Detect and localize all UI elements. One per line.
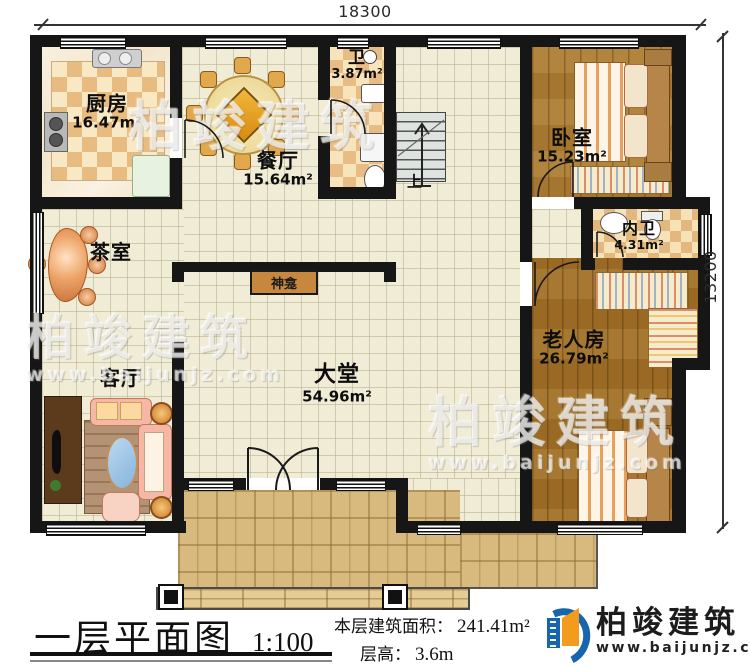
- dimension-line-top: [34, 24, 706, 26]
- window-elder-bottom: [557, 523, 643, 535]
- dining-label: 餐厅 15.64m²: [243, 149, 313, 188]
- window-hall-top: [427, 36, 501, 49]
- wall-ensuite-bottom-a: [581, 258, 595, 270]
- floor-height-label: 层高：: [360, 645, 411, 664]
- stove-burner-2: [49, 133, 63, 147]
- floor-height-value: 3.6m: [415, 644, 454, 665]
- kitchen-sink-basin-1: [98, 52, 111, 65]
- coffee-table: [106, 436, 138, 490]
- window-tea-left: [31, 212, 44, 314]
- company-logo-text: 柏竣建筑 www.baijunjz.com: [596, 607, 750, 656]
- porch-column-right: [382, 584, 408, 610]
- dining-chair-1: [282, 105, 299, 122]
- elder-headboard: [646, 428, 670, 526]
- wall-shrine-cap-left: [172, 262, 184, 282]
- hall-label: 大堂 54.96m²: [302, 363, 372, 404]
- wall-bedroom-right: [672, 35, 686, 209]
- title-underline-thick: [30, 652, 332, 656]
- floor-area-label: 本层建筑面积：: [334, 617, 453, 636]
- wall-hall-elder-upper: [520, 47, 532, 262]
- sofa-cushion-1: [96, 402, 118, 420]
- floorplan-canvas: 神龛 厨房 16.47m² 餐厅 15.64m² 卫 3.87m² 卧室 15.…: [0, 0, 750, 670]
- wall-kitchen-right-b: [170, 158, 182, 197]
- kitchen-label: 厨房 16.47m²: [72, 92, 142, 131]
- floor-height-row: 层高： 3.6m: [360, 640, 454, 666]
- dining-chair-7: [234, 57, 251, 74]
- ensuite-label: 内卫 4.31m²: [614, 220, 663, 252]
- company-website: www.baijunjz.com: [596, 640, 750, 656]
- porch-step: [156, 587, 470, 610]
- bath-label: 卫 3.87m²: [331, 49, 382, 83]
- kitchen-fridge: [132, 155, 170, 197]
- elder-bed-blanket: [578, 430, 628, 524]
- kitchen-sink-basin-2: [119, 52, 132, 65]
- bedroom-headboard: [646, 60, 670, 164]
- staircase: [396, 112, 446, 182]
- company-logo-icon: [536, 604, 588, 660]
- dining-chair-5: [186, 105, 203, 122]
- logo-building-blue: [547, 618, 560, 648]
- wall-bath-left-a: [318, 47, 330, 100]
- bedroom-nightstand-bottom: [644, 162, 672, 182]
- sofa-cushion-2: [120, 402, 142, 420]
- wall-kitchen-bottom: [30, 197, 182, 209]
- plant: [50, 480, 61, 491]
- dimension-right-value: 13200: [701, 232, 720, 322]
- elder-pillow-1: [626, 434, 648, 474]
- wall-living-right: [172, 342, 184, 533]
- stairs-up-label: 上: [407, 174, 423, 191]
- shrine-label: 神龛: [271, 273, 297, 292]
- bedroom-entry-nook-floor: [532, 209, 581, 258]
- side-table-1: [150, 402, 173, 425]
- window-hall-bottom: [417, 523, 461, 535]
- title-underline-thin: [30, 660, 332, 662]
- dimension-line-right: [722, 33, 724, 529]
- company-name: 柏竣建筑: [596, 607, 750, 640]
- wall-kitchen-right-a: [170, 47, 182, 118]
- window-entry-right: [336, 479, 386, 491]
- window-kitchen-top: [60, 36, 126, 49]
- living-stool: [102, 492, 140, 522]
- bedroom-nightstand-top: [644, 49, 672, 66]
- tea-stool-4: [78, 288, 96, 306]
- bedroom-pillow-2: [624, 114, 648, 158]
- chaise-cushion: [144, 432, 164, 492]
- window-living-bottom: [46, 523, 146, 536]
- bath-toilet: [361, 84, 386, 103]
- tea-room-label: 茶室: [90, 241, 132, 263]
- elder-wardrobe-top: [595, 272, 688, 310]
- floor-area-value: 241.41m²: [457, 616, 530, 637]
- elder-room-label: 老人房 26.79m²: [539, 328, 609, 367]
- elder-nightstand: [644, 398, 672, 426]
- wall-bath-bottom: [318, 187, 396, 199]
- living-label: 客厅: [100, 367, 142, 389]
- wall-ensuite-bottom-b: [623, 258, 710, 270]
- dimension-top-value: 18300: [320, 2, 410, 21]
- window-bath-top: [337, 36, 369, 49]
- porch-column-left: [158, 584, 184, 610]
- porch-main: [178, 490, 460, 587]
- dining-chair-6: [200, 71, 217, 88]
- wall-bath-right: [384, 47, 396, 197]
- window-entry-left: [188, 479, 234, 491]
- bedroom-pillow-1: [624, 64, 648, 108]
- elder-pillow-2: [626, 478, 648, 518]
- porch-right: [460, 533, 598, 589]
- floor-area-row: 本层建筑面积： 241.41m²: [334, 612, 530, 638]
- window-bedroom-top: [559, 36, 639, 49]
- wall-shrine-cap-right: [384, 262, 396, 282]
- bath-washer: [360, 133, 387, 162]
- stove-burner-1: [49, 117, 63, 131]
- wall-bedroom-bottom: [574, 197, 710, 209]
- wall-elder-right: [672, 358, 686, 533]
- tv: [52, 430, 61, 474]
- shrine-box: 神龛: [250, 270, 318, 295]
- bedroom-label: 卧室 15.23m²: [537, 126, 607, 165]
- side-table-2: [150, 496, 173, 519]
- window-dining-top: [205, 36, 287, 49]
- wall-hall-elder-lower: [520, 306, 532, 533]
